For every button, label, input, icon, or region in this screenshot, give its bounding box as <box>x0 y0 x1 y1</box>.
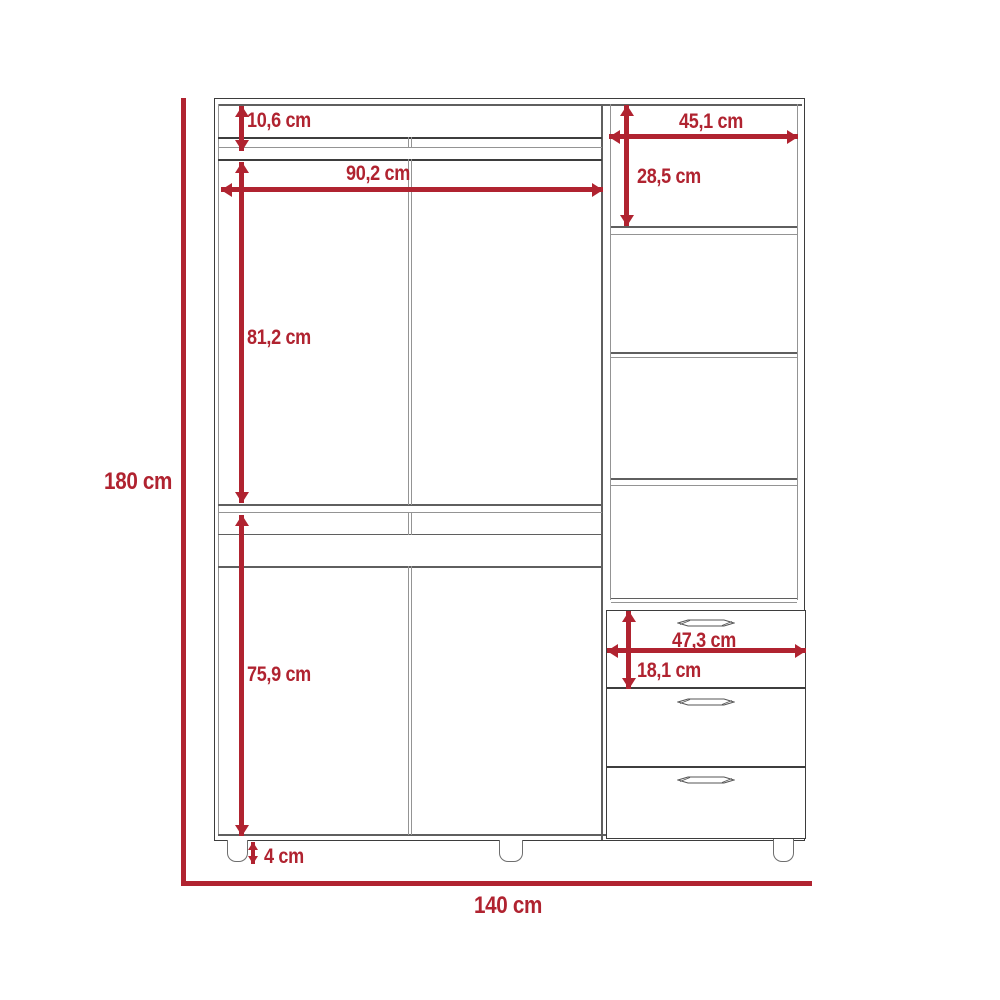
middle-rail-divider-line <box>408 512 409 535</box>
right-shelf-2-edge-line <box>611 357 797 358</box>
right-column-bottom-edge-line <box>611 602 797 603</box>
drawer-handle-icon <box>677 775 735 785</box>
upper-doors-bottom-line <box>218 504 602 506</box>
lower-doors-top-line <box>218 566 602 568</box>
right-column-bottom-line <box>611 598 797 599</box>
overall-height-label: 180 cm <box>84 468 172 496</box>
middle-rail-line <box>218 534 602 535</box>
upper-doors-top-line <box>218 159 602 161</box>
upper-door-divider-line <box>408 159 409 505</box>
right-section-width-label: 45,1 cm <box>634 110 789 134</box>
leg-center <box>499 840 523 862</box>
right-shelf-1-line <box>611 226 797 228</box>
lower-door-divider-line <box>411 566 412 835</box>
middle-rail-divider-line <box>411 512 412 535</box>
right-opening-height-label: 28,5 cm <box>637 165 701 189</box>
left-top-shelf-line <box>218 147 602 148</box>
overall-width-extent-line <box>181 881 812 886</box>
top-opening-height-arrow <box>239 106 244 151</box>
right-shelf-3-edge-line <box>611 485 797 486</box>
overall-width-label: 140 cm <box>444 892 573 920</box>
wardrobe-dimension-diagram: 180 cm 140 cm 10,6 cm 90,2 cm 81,2 cm 75… <box>0 0 1000 1000</box>
drawer-handle-icon <box>677 697 735 707</box>
lower-door-height-arrow <box>239 515 244 836</box>
left-section-width-label: 90,2 cm <box>301 162 456 186</box>
cabinet-left-inner-line <box>218 104 219 835</box>
drawer-height-label: 18,1 cm <box>637 659 701 683</box>
leg-right <box>773 839 794 862</box>
upper-door-divider-line <box>411 159 412 505</box>
left-top-rail-line <box>218 137 602 139</box>
top-rail-divider-line <box>408 137 409 148</box>
lower-door-divider-line <box>408 566 409 835</box>
drawer-divider-2-line <box>606 766 806 768</box>
middle-shelf-line <box>218 512 602 513</box>
right-shelf-3-line <box>611 478 797 480</box>
upper-door-height-arrow <box>239 162 244 503</box>
drawer-width-label: 47,3 cm <box>627 629 782 653</box>
overall-height-extent-line <box>181 98 186 886</box>
drawer-divider-1-line <box>606 687 806 689</box>
upper-door-height-label: 81,2 cm <box>247 326 311 350</box>
leg-height-label: 4 cm <box>264 845 304 869</box>
center-partition-left-line <box>601 104 603 840</box>
drawer-handle-icon <box>677 618 735 628</box>
leg-left <box>227 840 248 862</box>
lower-door-height-label: 75,9 cm <box>247 663 311 687</box>
right-shelf-2-line <box>611 352 797 354</box>
top-rail-divider-line <box>411 137 412 148</box>
top-opening-height-label: 10,6 cm <box>247 109 311 133</box>
right-opening-height-arrow <box>624 105 629 226</box>
right-section-width-arrow <box>609 134 798 139</box>
left-section-width-arrow <box>221 187 603 192</box>
right-column-inner-edge-line <box>797 104 798 600</box>
right-shelf-1-edge-line <box>611 234 797 235</box>
leg-height-arrow <box>251 842 255 864</box>
cabinet-top-inner-line <box>218 104 802 106</box>
